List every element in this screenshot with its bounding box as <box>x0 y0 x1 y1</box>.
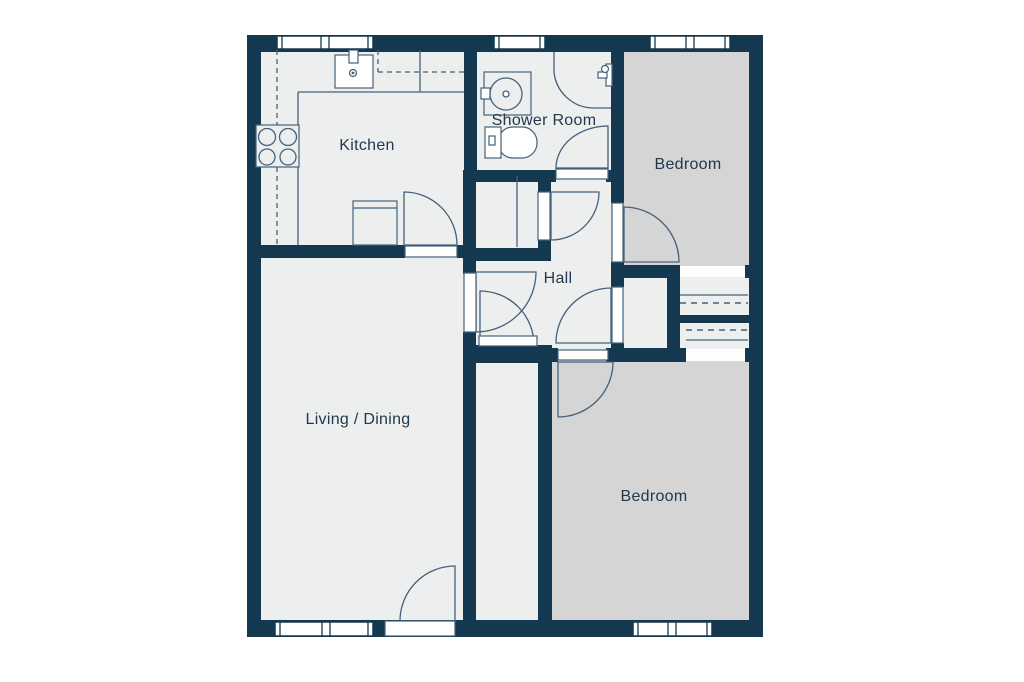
kitchen-label: Kitchen <box>339 137 394 155</box>
living-dining-label: Living / Dining <box>306 411 411 429</box>
floor-plan: Kitchen Shower Room Bedroom Hall Living … <box>0 0 1024 682</box>
window-bedroom-top <box>650 36 730 49</box>
window-kitchen <box>277 36 373 49</box>
window-living-dining <box>275 622 373 636</box>
bedroom-bottom-label: Bedroom <box>620 488 687 506</box>
hall-label: Hall <box>544 270 573 288</box>
wardrobe-bottom-opening <box>686 349 745 361</box>
wardrobe-top-opening <box>680 266 745 277</box>
window-shower-room <box>494 36 545 49</box>
floor-plan-drawing <box>0 0 1024 682</box>
wash-basin <box>481 72 531 115</box>
kitchen-sink <box>335 50 373 88</box>
bedroom-top-label: Bedroom <box>654 156 721 174</box>
stove-hob <box>256 125 299 167</box>
window-bedroom-bottom <box>633 622 712 636</box>
appliance-unit <box>353 201 397 245</box>
shower-room-label: Shower Room <box>492 112 597 130</box>
toilet <box>485 127 537 158</box>
